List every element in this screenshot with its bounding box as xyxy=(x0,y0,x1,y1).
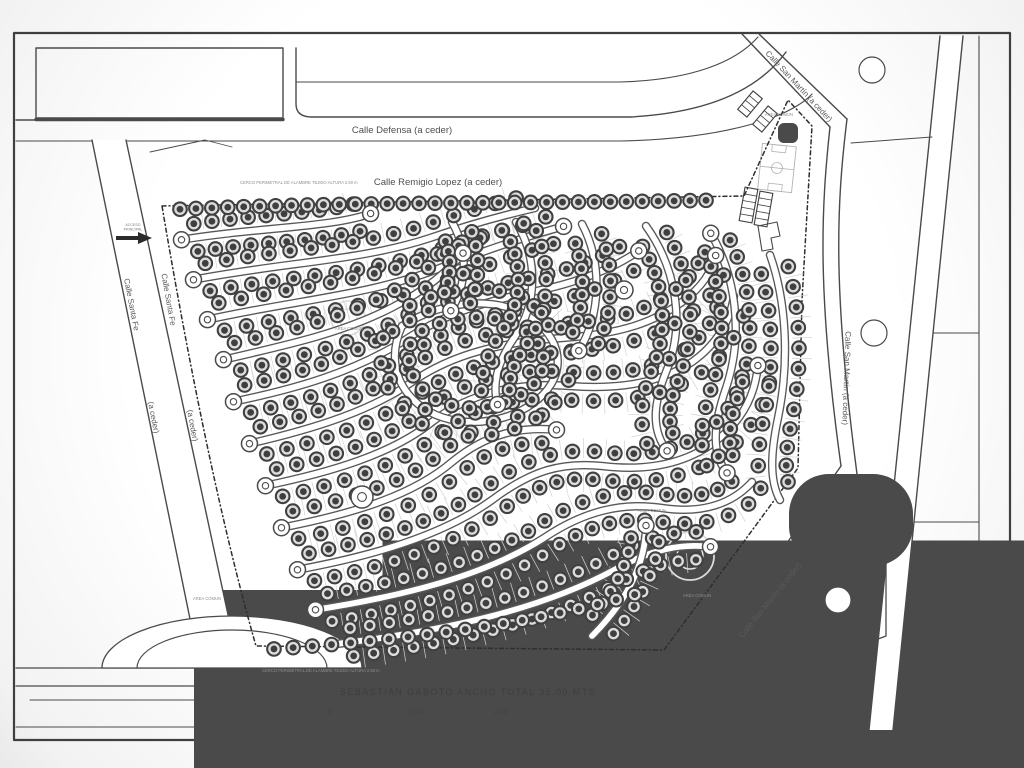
area-comun-label-southwest: AREA COMUN xyxy=(193,596,221,601)
area-comun-label-southeast: AREA COMUN xyxy=(683,593,711,598)
scale-tick-100: 100 xyxy=(409,706,423,716)
access-note-line2: PRINCIPAL xyxy=(124,228,143,232)
site-plan-svg: Calle Defensa (a ceder) Calle Remigio Lo… xyxy=(0,0,1024,768)
street-label-san-martin-east: Calle San Martín (a ceder) xyxy=(840,331,852,425)
street-label-sebastian-gaboto: SEBASTIAN GABOTO ANCHO TOTAL 35.00 MTS xyxy=(340,687,596,697)
fence-note-bottom: CERCO PERIMETRAL DE ALAMBRE TEJIDO ALTUR… xyxy=(262,668,380,673)
area-comun-label-center-left: AREA COMUN xyxy=(335,326,363,331)
site-plan-page: Calle Defensa (a ceder) Calle Remigio Lo… xyxy=(0,0,1024,768)
access-note-line1: ACCESO xyxy=(125,223,140,227)
street-label-remigio-lopez: Calle Remigio Lopez (a ceder) xyxy=(374,177,502,188)
fence-note-top: CERCO PERIMETRAL DE ALAMBRE TEJIDO ALTUR… xyxy=(240,180,358,185)
area-comun-label-center-right: AREA COMUN xyxy=(638,508,666,513)
scale-tick-0: 0 xyxy=(328,706,333,716)
street-label-defensa: Calle Defensa (a ceder) xyxy=(352,125,452,136)
scale-tick-200: 200 xyxy=(494,706,508,716)
area-comun-label-entrance: AREA COMUN xyxy=(765,112,793,117)
